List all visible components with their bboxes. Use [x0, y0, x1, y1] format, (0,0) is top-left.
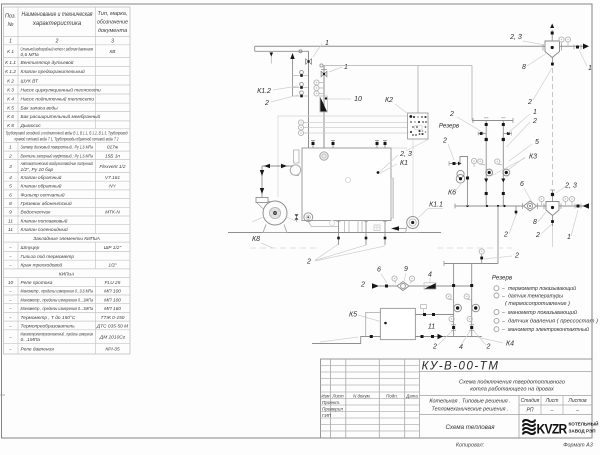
svg-text:11: 11	[8, 218, 13, 224]
svg-text:Бак расширительный мембранный: Бак расширительный мембранный	[21, 113, 101, 120]
svg-text:К6: К6	[448, 190, 456, 197]
svg-text:Резерв: Резерв	[439, 123, 460, 130]
svg-text:К 2: К 2	[7, 78, 14, 84]
svg-text:Фильтр сетчатый: Фильтр сетчатый	[21, 191, 65, 198]
svg-text:К2: К2	[385, 97, 393, 104]
svg-text:Клапан соленоидный: Клапан соленоидный	[21, 226, 69, 233]
svg-text:К 1.2: К 1.2	[5, 69, 16, 75]
svg-text:Трубопровод исходной и подпито: Трубопровод исходной и подпиточной воды …	[6, 130, 128, 136]
svg-text:2: 2	[535, 232, 540, 239]
svg-text:Реле давления: Реле давления	[21, 347, 55, 353]
svg-text:2: 2	[449, 111, 454, 118]
svg-text:9: 9	[9, 210, 12, 216]
svg-text:МП 100: МП 100	[104, 289, 121, 295]
svg-text:КВ: КВ	[109, 49, 116, 55]
svg-text:Закладные элементы КИПиА: Закладные элементы КИПиА	[33, 236, 100, 242]
svg-text:2: 2	[503, 232, 508, 239]
svg-text:МТК-N: МТК-N	[105, 210, 120, 216]
svg-text:8: 8	[533, 219, 537, 226]
svg-text:–: –	[8, 290, 12, 295]
svg-text:Насос циркуляционный теплосети: Насос циркуляционный теплосети	[21, 87, 101, 94]
svg-text:Изм: Изм	[321, 393, 329, 398]
svg-text:МП 100: МП 100	[104, 297, 121, 303]
svg-text:Термопреобразователь: Термопреобразователь	[21, 323, 76, 329]
svg-text:Формат А3: Формат А3	[563, 443, 593, 449]
svg-text:К 1.1: К 1.1	[5, 60, 16, 66]
svg-text:Манометрэлектроконтактный , п: Манометрэлектроконтактный , пределы изме…	[21, 330, 94, 337]
svg-text:К 5: К 5	[7, 105, 14, 111]
svg-text:Схема подключения твердотоплив: Схема подключения твердотопливного	[459, 380, 565, 386]
svg-text:Лист: Лист	[331, 393, 344, 398]
svg-text:–: –	[501, 286, 505, 292]
svg-text:Резерв: Резерв	[492, 275, 513, 282]
svg-text:Клапан предохранительный: Клапан предохранительный	[21, 68, 86, 75]
svg-text:датчик давления ( прессостат: датчик давления ( прессостат )	[508, 319, 598, 325]
svg-text:манометр показывающий: манометр показывающий	[508, 309, 577, 316]
svg-text:ДМ 2010Сг: ДМ 2010Сг	[99, 335, 126, 341]
svg-text:Затвор дисковый поворотный ;: Затвор дисковый поворотный ; Ру 1,6 МПа	[21, 144, 94, 151]
svg-text:–: –	[8, 298, 12, 303]
svg-text:Манометр , пределы измерения: Манометр , пределы измерения 0...0,6 МПа	[21, 289, 94, 295]
svg-text:Бак запаса воды: Бак запаса воды	[21, 105, 59, 111]
svg-text:–: –	[8, 348, 12, 353]
svg-text:Тип, марка,: Тип, марка,	[98, 11, 128, 17]
svg-text:–: –	[8, 324, 12, 329]
svg-text:Наименование и техническая: Наименование и техническая	[22, 12, 94, 18]
svg-text:МП 160: МП 160	[104, 306, 121, 312]
svg-text:–: –	[501, 293, 505, 299]
svg-text:Реле протока: Реле протока	[21, 280, 53, 286]
svg-text:К 3: К 3	[7, 88, 14, 94]
svg-text:10: 10	[354, 96, 362, 103]
svg-text:Flexvent 1/2: Flexvent 1/2	[99, 164, 125, 170]
svg-text:Манометр , пределы измерения: Манометр , пределы измерения 0...1МПа	[21, 297, 94, 303]
svg-text:–: –	[8, 264, 12, 269]
svg-text:( термосопротивление ): ( термосопротивление )	[505, 301, 570, 307]
svg-text:2: 2	[360, 282, 365, 289]
svg-text:10: 10	[8, 280, 14, 286]
svg-text:термометр показывающий: термометр показывающий	[508, 285, 576, 292]
svg-text:Копировал:: Копировал:	[456, 443, 485, 449]
svg-text:Штуцер: Штуцер	[21, 245, 40, 251]
svg-text:Проверил: Проверил	[322, 406, 343, 411]
svg-text:датчик температуры: датчик температуры	[508, 293, 563, 299]
svg-text:–: –	[8, 336, 12, 341]
svg-text:–: –	[501, 310, 505, 316]
svg-text:К1.1: К1.1	[429, 202, 443, 209]
svg-text:Автоматический воздухоотводчи: Автоматический воздухоотводчик латунный	[20, 160, 93, 167]
svg-text:3: 3	[9, 164, 12, 170]
svg-text:2, 3: 2, 3	[509, 34, 522, 41]
svg-text:6: 6	[9, 192, 12, 198]
svg-text:КУ-В-00-ТМ: КУ-В-00-ТМ	[422, 361, 500, 373]
svg-text:К1.2: К1.2	[257, 88, 271, 95]
svg-text:котла работающего на дровах: котла работающего на дровах	[470, 387, 554, 393]
svg-text:Листов: Листов	[567, 398, 587, 404]
svg-text:КРI-35: КРI-35	[105, 347, 120, 353]
svg-text:№: №	[7, 22, 13, 28]
svg-text:Кран трехходовой: Кран трехходовой	[21, 262, 63, 269]
svg-text:3: 3	[111, 39, 114, 45]
svg-text:Стальной водогрейный котел с р: Стальной водогрейный котел с рабочим дав…	[21, 45, 94, 52]
svg-text:0...1МПа: 0...1МПа	[21, 337, 41, 343]
svg-text:–: –	[8, 316, 12, 321]
svg-text:Вентиль запорный муфтовый ; Р: Вентиль запорный муфтовый ; Ру 1,6 МПа	[21, 152, 94, 159]
svg-text:–: –	[8, 255, 12, 260]
svg-text:Грязевик абонентский: Грязевик абонентский	[21, 200, 72, 207]
svg-text:1/2": 1/2"	[108, 263, 117, 269]
svg-text:1: 1	[9, 39, 12, 45]
svg-text:KVZR: KVZR	[537, 422, 568, 437]
svg-text:Подп.: Подп.	[386, 393, 398, 398]
svg-text:РП: РП	[527, 408, 534, 414]
svg-text:4: 4	[428, 272, 432, 279]
svg-text:15Б 1п: 15Б 1п	[105, 153, 120, 159]
svg-text:N докум.: N докум.	[353, 393, 371, 398]
svg-text:прямой сетевой воды Т 1, Труб: прямой сетевой воды Т 1, Трубопроводы об…	[15, 135, 119, 141]
svg-text:ГИП: ГИП	[322, 413, 332, 418]
svg-text:2: 2	[264, 100, 269, 107]
svg-text:Котельная . Типовые решения .: Котельная . Типовые решения .	[429, 398, 510, 404]
svg-text:Лист: Лист	[545, 398, 559, 404]
svg-text:ТТЖ 0-150: ТТЖ 0-150	[101, 315, 125, 321]
svg-text:К4: К4	[506, 341, 514, 348]
svg-text:2: 2	[527, 99, 532, 106]
svg-text:КОТЕЛЬНЫЙ: КОТЕЛЬНЫЙ	[569, 420, 599, 427]
svg-text:ШР 1/2": ШР 1/2"	[104, 245, 122, 251]
svg-text:1: 1	[533, 109, 537, 116]
svg-text:К1: К1	[400, 160, 408, 167]
svg-text:К 6: К 6	[7, 114, 14, 120]
svg-text:Вентилятор дутьевой: Вентилятор дутьевой	[21, 59, 74, 66]
svg-text:1: 1	[344, 64, 348, 71]
svg-text:1/2", Ру 10 бар: 1/2", Ру 10 бар	[21, 167, 54, 173]
svg-text:1: 1	[588, 65, 592, 72]
svg-text:манометр электроконтактный: манометр электроконтактный	[508, 326, 589, 333]
svg-text:К 1: К 1	[7, 49, 14, 55]
svg-text:2: 2	[514, 253, 519, 260]
svg-text:Тепломеханические решения .: Тепломеханические решения .	[432, 406, 509, 412]
svg-text:6: 6	[520, 181, 524, 188]
svg-text:FLU 25: FLU 25	[105, 280, 121, 286]
svg-text:1: 1	[9, 145, 12, 151]
svg-text:Гильза под термометр: Гильза под термометр	[21, 254, 75, 260]
svg-text:документа: документа	[98, 28, 127, 34]
svg-text:4: 4	[9, 175, 12, 181]
svg-text:1: 1	[325, 40, 329, 47]
svg-text:Термометр , Т до 150°С: Термометр , Т до 150°С	[21, 315, 76, 321]
svg-text:Проект.: Проект.	[322, 400, 340, 405]
svg-text:017ж: 017ж	[107, 145, 119, 151]
svg-text:–: –	[575, 408, 579, 414]
svg-text:Водосчетчик: Водосчетчик	[21, 210, 52, 216]
svg-text:11: 11	[8, 227, 13, 233]
svg-text:2: 2	[532, 118, 537, 125]
svg-text:NY: NY	[109, 184, 116, 190]
svg-text:11: 11	[428, 324, 435, 331]
svg-text:Поз.: Поз.	[5, 14, 16, 20]
svg-text:Стадия: Стадия	[521, 398, 540, 404]
svg-text:8: 8	[9, 201, 12, 207]
svg-text:2, 3: 2, 3	[564, 183, 577, 190]
svg-text:КИПиА: КИПиА	[59, 271, 75, 277]
svg-text:К 8: К 8	[7, 123, 14, 129]
svg-text:V7.161: V7.161	[105, 175, 121, 181]
svg-text:8: 8	[522, 64, 526, 71]
svg-text:2, 3: 2, 3	[399, 151, 412, 158]
svg-text:2: 2	[55, 39, 59, 45]
svg-text:Насос подпиточный теплосети: Насос подпиточный теплосети	[21, 96, 95, 103]
svg-text:2: 2	[306, 259, 311, 266]
svg-text:обозначение: обозначение	[97, 20, 128, 26]
svg-text:2: 2	[432, 344, 437, 351]
svg-text:–: –	[501, 319, 505, 325]
svg-text:2: 2	[442, 138, 447, 145]
svg-text:–: –	[8, 307, 12, 312]
svg-text:ДТС 035-50 М: ДТС 035-50 М	[96, 323, 128, 329]
svg-text:Дымосос: Дымосос	[20, 123, 42, 129]
svg-text:2: 2	[486, 344, 491, 351]
svg-text:1: 1	[567, 234, 571, 241]
svg-text:Дата: Дата	[405, 393, 418, 398]
svg-text:характеристика: характеристика	[32, 21, 82, 27]
svg-text:ЗАВОД РЭП: ЗАВОД РЭП	[569, 429, 596, 434]
svg-text:Клапан поплавковый: Клапан поплавковый	[21, 217, 68, 224]
svg-text:–: –	[8, 246, 12, 251]
svg-text:–: –	[550, 408, 554, 414]
svg-text:5: 5	[535, 139, 539, 146]
svg-text:–: –	[501, 327, 505, 333]
svg-text:Клапан обратный: Клапан обратный	[21, 183, 62, 190]
svg-text:0,6 МПа: 0,6 МПа	[21, 52, 39, 58]
svg-text:К8: К8	[252, 236, 260, 243]
svg-text:Клапан обратный: Клапан обратный	[21, 174, 62, 181]
svg-text:2: 2	[8, 153, 12, 159]
svg-text:К3: К3	[529, 154, 537, 161]
svg-text:К5: К5	[349, 312, 357, 319]
svg-text:Манометр , пределы измерения: Манометр , пределы измерения 0...1МПа	[21, 306, 94, 312]
svg-text:Схема тепловая: Схема тепловая	[445, 424, 495, 431]
svg-text:4: 4	[459, 344, 463, 351]
svg-text:6: 6	[377, 267, 381, 274]
svg-text:9: 9	[404, 266, 408, 273]
svg-text:5: 5	[9, 184, 12, 190]
svg-text:К 4: К 4	[7, 97, 14, 103]
svg-text:ШУК ВТ: ШУК ВТ	[21, 78, 40, 84]
